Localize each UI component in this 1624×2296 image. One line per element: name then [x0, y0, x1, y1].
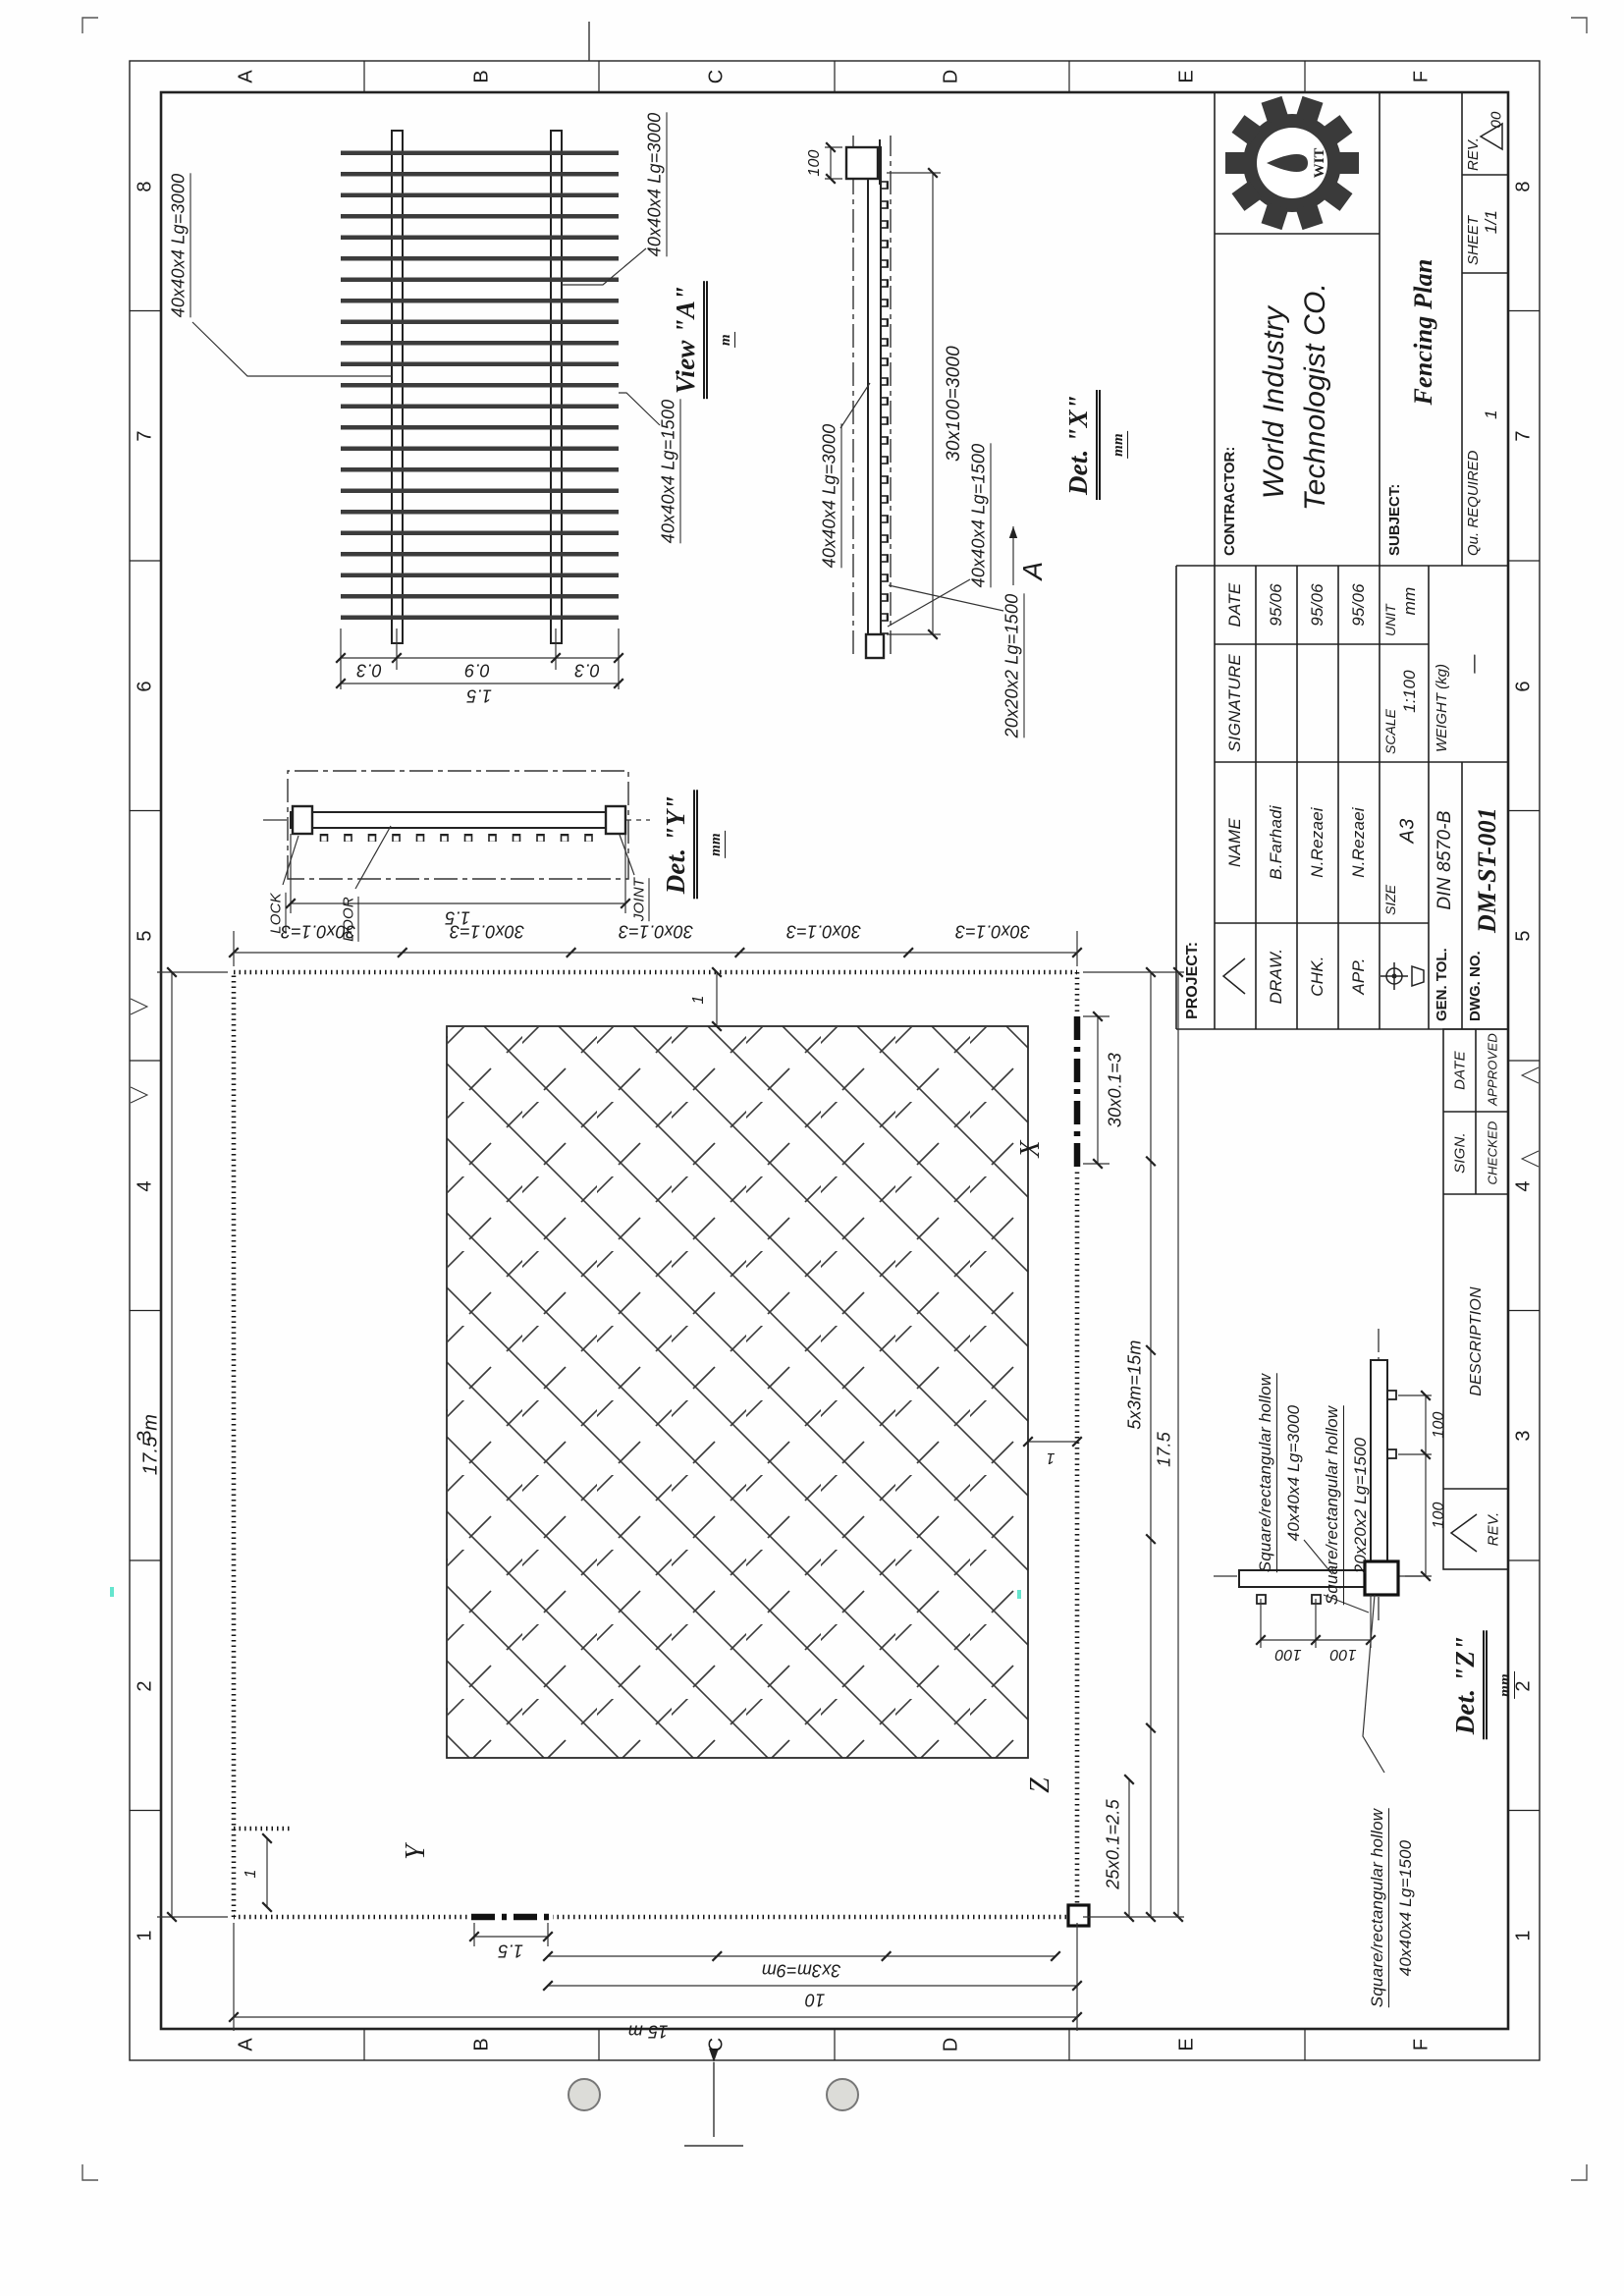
- scan-speck: [110, 1587, 114, 1597]
- row-role: DRAW.: [1267, 949, 1286, 1005]
- joint-block: [606, 806, 625, 834]
- det-z-label1-size: 40x40x4 Lg=3000: [1284, 1405, 1304, 1542]
- grid-number: 4: [1513, 1180, 1536, 1191]
- det-y-title: Det. "Y": [661, 791, 698, 900]
- view-a-lines: [192, 131, 660, 689]
- plan-left-dim-9m: 3x3m=9m: [762, 1960, 841, 1981]
- plan-bottom-dim-1: 5x3m=15m: [1125, 1339, 1146, 1429]
- size-value: A3: [1397, 819, 1420, 844]
- revstrip-rev: REV.: [1486, 1512, 1502, 1547]
- plan-left-dim-10: 10: [805, 1990, 825, 2010]
- projection-symbol-icon: [1380, 962, 1424, 990]
- dwg-no-label: DWG. NO.: [1467, 951, 1484, 1021]
- date-header: DATE: [1225, 583, 1245, 628]
- grid-number: 2: [135, 1680, 157, 1691]
- unit-value: mm: [1400, 587, 1420, 616]
- revstrip-sign: SIGN.: [1452, 1132, 1469, 1174]
- qu-required-label: Qu. REQUIRED: [1465, 450, 1482, 556]
- plan-right-chain-dim: 30x0.1=3: [619, 921, 693, 942]
- contractor-name-line1: World Industry: [1258, 306, 1291, 499]
- det-z-dim-100: 100: [1431, 1411, 1448, 1438]
- det-x-post-label: 40x40x4 Lg=1500: [969, 444, 992, 588]
- unit-label: UNIT: [1382, 604, 1398, 636]
- revstrip-description: DESCRIPTION: [1468, 1286, 1486, 1396]
- grid-letter: D: [941, 2038, 963, 2051]
- punch-hole: [568, 2079, 600, 2110]
- det-x-spacing-dim: 30x100=3000: [944, 346, 965, 462]
- marker-y: Y: [401, 1844, 432, 1860]
- logo-text: WIT: [1312, 148, 1327, 179]
- grid-letter: B: [471, 2038, 494, 2050]
- grid-letter: B: [471, 70, 494, 82]
- project-label: PROJECT:: [1184, 942, 1202, 1019]
- plan-right-chain-dim: 30x0.1=3: [786, 921, 861, 942]
- contractor-label: CONTRACTOR:: [1221, 447, 1238, 556]
- drawing-sheet: WIT: [0, 0, 1624, 2296]
- det-x-unit: mm: [1110, 431, 1128, 459]
- row-name: B.Farhadi: [1267, 805, 1286, 880]
- grid-letter: C: [706, 2038, 729, 2051]
- grid-letter: A: [236, 2038, 258, 2050]
- plan-left-dim-15: 15 m: [628, 2021, 669, 2042]
- det-x-rail-label: 40x40x4 Lg=3000: [820, 424, 842, 569]
- dim-one: 1: [690, 995, 708, 1004]
- view-a-dim-total: 1.5: [466, 685, 492, 706]
- grid-letter: F: [1411, 2039, 1434, 2050]
- det-z-label2-size: 20x20x2 Lg=1500: [1351, 1438, 1371, 1574]
- grid-number: 1: [1513, 1930, 1536, 1941]
- door-label: DOOR: [341, 897, 359, 942]
- grid-number: 5: [135, 930, 157, 941]
- row-date: 95/06: [1267, 583, 1286, 627]
- building-outline: [447, 1026, 1028, 1758]
- det-y-dim: 1.5: [445, 907, 470, 928]
- det-z-label3-size: 40x40x4 Lg=1500: [1396, 1840, 1416, 1977]
- plan-bottom-dim-2: 17.5: [1155, 1432, 1175, 1467]
- grid-number: 1: [135, 1930, 157, 1941]
- plan-lines: [157, 931, 1184, 2031]
- gen-tol-label: GEN. TOL.: [1434, 948, 1450, 1021]
- gate-y-dim: 1.5: [498, 1941, 523, 1961]
- grid-number: 2: [1513, 1680, 1536, 1691]
- punch-hole: [827, 2079, 858, 2110]
- row-date: 95/06: [1349, 583, 1369, 627]
- grid-number: 5: [1513, 930, 1536, 941]
- marker-x: X: [1015, 1140, 1047, 1157]
- scanned-drawing-page: { "sheet": { "grid_letters": ["A","B","C…: [0, 0, 1624, 2296]
- row-name: N.Rezaei: [1349, 807, 1369, 878]
- subject-label: SUBJECT:: [1386, 484, 1403, 556]
- signature-header: SIGNATURE: [1225, 654, 1245, 752]
- grid-letter: F: [1411, 71, 1434, 82]
- view-a-rail-label-top: 40x40x4 Lg=3000: [169, 174, 191, 318]
- dwg-no-value: DM-ST-001: [1473, 807, 1502, 933]
- weight-label: WEIGHT (kg): [1434, 664, 1450, 752]
- scale-label: SCALE: [1382, 709, 1398, 754]
- corner-dim: 25x0.1=2.5: [1104, 1799, 1124, 1889]
- grid-letter: C: [706, 70, 729, 83]
- det-x-pickets: [881, 173, 889, 634]
- dim-one: 1: [1046, 1449, 1055, 1466]
- grid-number: 7: [135, 430, 157, 441]
- weight-value: —: [1464, 654, 1486, 673]
- view-a-pickets: [341, 142, 619, 629]
- view-a-unit: m: [718, 332, 735, 348]
- view-a-dim: 0.9: [464, 660, 490, 681]
- subject-value: Fencing Plan: [1409, 258, 1438, 405]
- lock-label: LOCK: [268, 893, 287, 934]
- view-a-picket-label: 40x40x4 Lg=1500: [659, 400, 681, 544]
- det-z-title: Det. "Z": [1450, 1631, 1488, 1740]
- wit-logo-icon: WIT: [1225, 96, 1359, 230]
- corner-post-marker: [1068, 1905, 1089, 1926]
- det-x-left-post: [866, 634, 884, 658]
- rev-value: 00: [1489, 111, 1505, 128]
- det-z-dim-100: 100: [1274, 1645, 1301, 1663]
- header-triangle-icon: [1223, 958, 1245, 994]
- det-y-lines: [263, 771, 650, 913]
- view-a-dim: 0.3: [356, 660, 382, 681]
- contractor-name-line2: Technologist CO.: [1299, 283, 1332, 511]
- grid-letter: A: [236, 70, 258, 82]
- view-a-dim: 0.3: [574, 660, 600, 681]
- view-arrow-letter: A: [1017, 562, 1049, 580]
- row-date: 95/06: [1308, 583, 1327, 627]
- det-y-unit: mm: [708, 831, 726, 858]
- sheet-label: SHEET: [1465, 216, 1482, 265]
- plan-overall-width-dim: 17.5 m: [140, 1414, 163, 1475]
- name-header: NAME: [1225, 818, 1245, 867]
- det-x-picket-label: 20x20x2 Lg=1500: [1002, 594, 1025, 738]
- view-a-title: View "A": [671, 281, 708, 399]
- grid-letter: E: [1176, 2038, 1199, 2050]
- det-z-dim-100: 100: [1431, 1502, 1448, 1528]
- sheet-value: 1/1: [1482, 210, 1501, 234]
- grid-number: 6: [135, 681, 157, 691]
- plan-right-chain-dim: 30x0.1=3: [955, 921, 1030, 942]
- row-role: APP.: [1349, 957, 1369, 994]
- row-name: N.Rezaei: [1308, 807, 1327, 878]
- det-x-end-dim: 100: [806, 149, 824, 176]
- grid-number: 7: [1513, 430, 1536, 441]
- rev-label: REV.: [1465, 137, 1482, 171]
- grid-number: 3: [1513, 1430, 1536, 1441]
- det-x-title: Det. "X": [1063, 390, 1101, 500]
- det-z-label3: Square/rectangular hollow: [1368, 1809, 1389, 2008]
- scale-value: 1:100: [1400, 670, 1420, 713]
- rev-triangle-icon: [1451, 1514, 1477, 1552]
- revstrip-approved: APPROVED: [1486, 1033, 1500, 1106]
- marker-z: Z: [1025, 1777, 1056, 1793]
- qu-required-value: 1: [1482, 410, 1501, 419]
- grid-number: 6: [1513, 681, 1536, 691]
- size-label: SIZE: [1382, 885, 1398, 915]
- grid-letter: E: [1176, 70, 1199, 82]
- grid-number: 8: [1513, 181, 1536, 191]
- title-block-lines: [1176, 92, 1508, 1029]
- scan-background: WIT: [0, 0, 1624, 2296]
- grid-number: 4: [135, 1180, 157, 1191]
- gen-tol-value: DIN 8570-B: [1435, 810, 1456, 909]
- det-z-label1: Square/rectangular hollow: [1256, 1374, 1277, 1573]
- grid-number: 8: [135, 181, 157, 191]
- dim-one: 1: [243, 1869, 260, 1878]
- revstrip-date: DATE: [1452, 1051, 1469, 1090]
- gate-x-dim: 30x0.1=3: [1106, 1053, 1126, 1127]
- lock-block: [293, 806, 312, 834]
- revstrip-checked: CHECKED: [1486, 1121, 1500, 1185]
- det-y-pickets: [316, 834, 605, 842]
- row-role: CHK.: [1308, 956, 1327, 996]
- det-z-unit: mm: [1497, 1671, 1515, 1699]
- joint-label: JOINT: [631, 878, 650, 921]
- det-z-label2: Square/rectangular hollow: [1323, 1406, 1344, 1606]
- det-z-dim-100: 100: [1329, 1645, 1356, 1663]
- view-a-rail-label-bottom: 40x40x4 Lg=3000: [645, 113, 668, 257]
- det-x-end-post: [846, 147, 878, 179]
- grid-letter: D: [941, 70, 963, 83]
